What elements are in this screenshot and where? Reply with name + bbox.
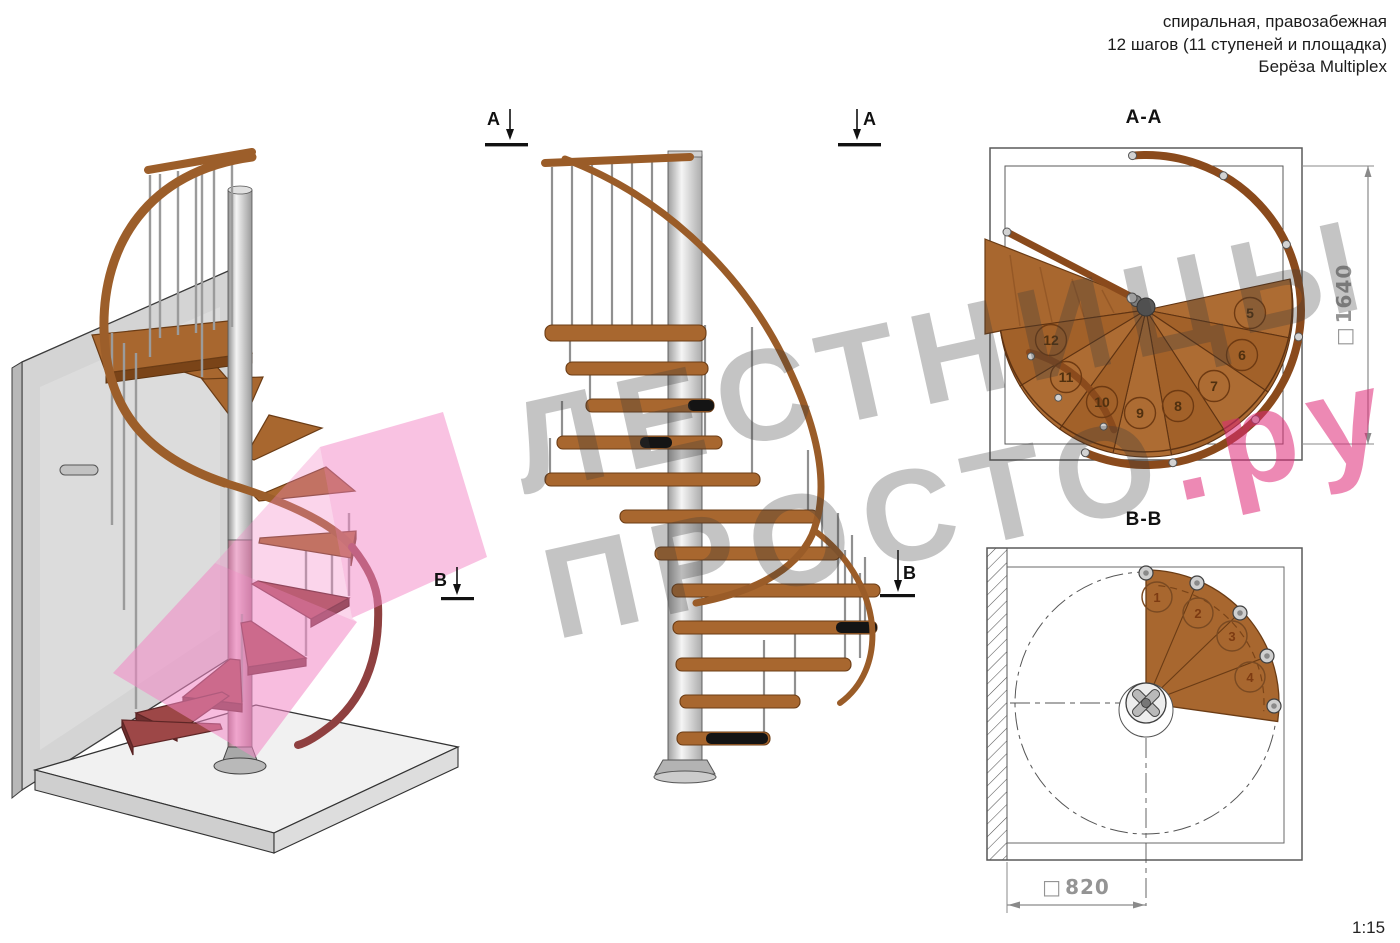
section-arrow-icon (506, 129, 514, 140)
plan-bb-title: B-B (1126, 509, 1163, 530)
step-number: 8 (1174, 398, 1182, 414)
plan-aa-title: A-A (1126, 107, 1163, 128)
section-marker-a-left: A (481, 106, 533, 152)
step-number: 2 (1194, 606, 1201, 621)
section-marker-letter: B (903, 563, 916, 583)
steps-count-label: 12 шагов (11 ступеней и площадка) (1107, 34, 1387, 57)
center-column-elevation (654, 151, 716, 783)
section-marker-b-iso: B (431, 565, 477, 605)
wall-strut (60, 465, 98, 475)
scale-label: 1:15 (1352, 918, 1385, 938)
stair-type-label: спиральная, правозабежная (1107, 11, 1387, 34)
step-number: 1 (1153, 590, 1160, 605)
title-block: спиральная, правозабежная 12 шагов (11 с… (1107, 11, 1387, 79)
section-arrow-icon (894, 580, 902, 592)
material-label: Берёза Multiplex (1107, 56, 1387, 79)
step-number: 11 (1059, 369, 1074, 385)
wall-hatch (987, 548, 1007, 860)
step-number: 4 (1246, 670, 1254, 685)
step-number: 5 (1246, 305, 1254, 321)
plan-aa-view: A-A (980, 95, 1400, 500)
section-arrow-icon (453, 584, 461, 595)
step-number: 3 (1228, 629, 1235, 644)
section-marker-a-right: A (836, 106, 888, 152)
elevation-view (500, 95, 980, 855)
drawing-sheet: спиральная, правозабежная 12 шагов (11 с… (0, 0, 1400, 943)
dimension-1640: □1640 (1332, 264, 1356, 347)
iso-view (0, 95, 500, 943)
dimension-820: □820 (1042, 875, 1110, 899)
section-marker-letter: A (487, 109, 500, 129)
plan-bb-view: B-B (980, 500, 1400, 943)
section-marker-letter: A (863, 109, 876, 129)
step-number: 6 (1238, 347, 1246, 363)
plan-aa-dimension: □1640 (1302, 166, 1374, 444)
section-arrow-icon (853, 129, 861, 140)
plan-bb-dimension: □820 (1007, 862, 1146, 913)
step-number: 12 (1043, 332, 1059, 348)
section-marker-letter: B (434, 570, 447, 590)
steps-elevation (545, 325, 880, 745)
step-number: 10 (1094, 394, 1110, 410)
section-marker-b-elevation: B (878, 548, 920, 600)
plan-bb-column (1119, 683, 1173, 737)
step-number: 9 (1136, 405, 1144, 421)
step-number: 7 (1210, 378, 1218, 394)
